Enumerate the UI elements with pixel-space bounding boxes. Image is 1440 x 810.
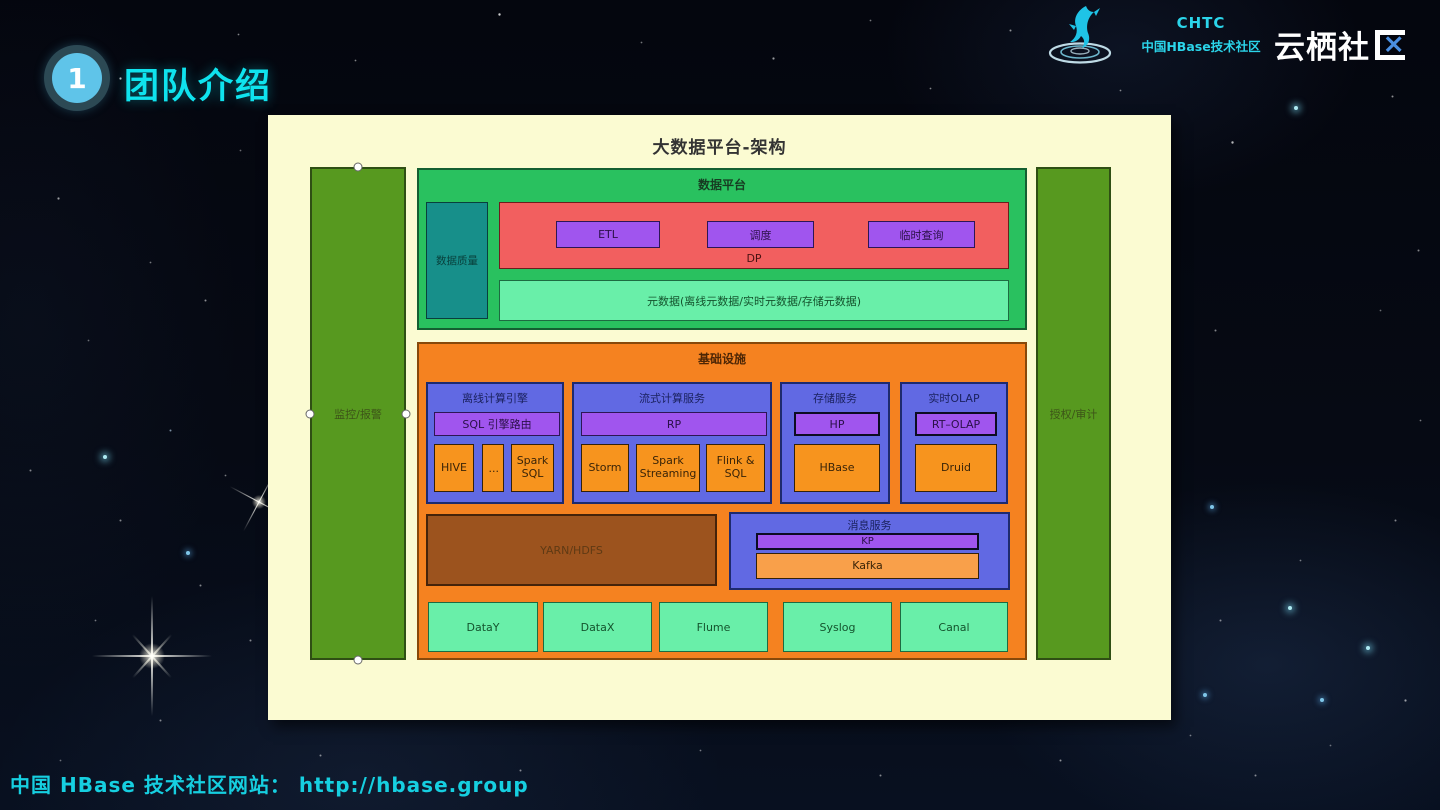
star-glow <box>186 551 190 555</box>
more-engines-box[interactable]: ... <box>482 444 504 492</box>
rp-label: RP <box>667 418 681 431</box>
hbase-label: HBase <box>819 462 854 475</box>
star-glow <box>1210 505 1214 509</box>
storage-service-card[interactable]: 存储服务 HP HBase <box>780 382 890 504</box>
monitoring-alert-label: 监控/报警 <box>334 406 382 422</box>
spark-streaming-label: Spark Streaming <box>637 455 699 480</box>
community-website-link[interactable]: 中国 HBase 技术社区网站： http://hbase.group <box>10 769 529 798</box>
data-platform-panel[interactable]: 数据平台 数据质量 ETL 调度 临时查询 DP 元数据(离线元数据/实时元数据… <box>417 168 1027 330</box>
syslog-label: Syslog <box>820 621 856 634</box>
dp-label: DP <box>500 252 1008 265</box>
metadata-box[interactable]: 元数据(离线元数据/实时元数据/存储元数据) <box>499 280 1009 321</box>
offline-compute-title: 离线计算引擎 <box>428 390 562 406</box>
realtime-olap-title: 实时OLAP <box>902 390 1006 406</box>
rp-box[interactable]: RP <box>581 412 767 436</box>
auth-audit-label: 授权/审计 <box>1050 406 1098 422</box>
streaming-compute-title: 流式计算服务 <box>574 390 770 406</box>
chtc-logo-text: CHTC 中国HBase技术社区 <box>1122 14 1280 55</box>
spark-streaming-box[interactable]: Spark Streaming <box>636 444 700 492</box>
adhoc-query-label: 临时查询 <box>900 227 944 243</box>
flume-label: Flume <box>697 621 731 634</box>
metadata-label: 元数据(离线元数据/实时元数据/存储元数据) <box>647 293 861 309</box>
starfield-background <box>0 0 1 1</box>
kafka-label: Kafka <box>852 560 883 573</box>
flink-sql-label: Flink & SQL <box>717 455 755 480</box>
page-title: 团队介绍 <box>124 58 272 109</box>
yunqi-community-logo: 云栖社 × <box>1274 22 1405 67</box>
spark-sql-box[interactable]: Spark SQL <box>511 444 554 492</box>
selection-handle-bottom[interactable] <box>354 656 363 665</box>
canal-label: Canal <box>938 621 969 634</box>
sql-engine-router-label: SQL 引擎路由 <box>462 416 531 432</box>
diagram-title: 大数据平台-架构 <box>268 133 1171 158</box>
kp-box[interactable]: KP <box>756 533 979 550</box>
kafka-box[interactable]: Kafka <box>756 553 979 579</box>
ellipsis-label: ... <box>489 463 498 474</box>
scheduler-box[interactable]: 调度 <box>707 221 814 248</box>
spark-sql-label: Spark SQL <box>512 455 553 480</box>
chtc-community-name: 中国HBase技术社区 <box>1122 36 1280 55</box>
selection-handle-top[interactable] <box>354 163 363 172</box>
canal-box[interactable]: Canal <box>900 602 1008 652</box>
datax-label: DataX <box>581 621 615 634</box>
selection-handle-left[interactable] <box>306 410 315 419</box>
yunqi-logo-text: 云栖社 <box>1274 22 1370 67</box>
druid-label: Druid <box>941 462 971 475</box>
infrastructure-title: 基础设施 <box>419 350 1025 367</box>
rt-olap-label: RT–OLAP <box>932 418 980 431</box>
hp-label: HP <box>830 418 845 431</box>
druid-box[interactable]: Druid <box>915 444 997 492</box>
adhoc-query-box[interactable]: 临时查询 <box>868 221 975 248</box>
sql-engine-router-box[interactable]: SQL 引擎路由 <box>434 412 560 436</box>
data-quality-box[interactable]: 数据质量 <box>426 202 488 319</box>
hp-box[interactable]: HP <box>794 412 880 436</box>
data-quality-label: 数据质量 <box>436 253 478 268</box>
streaming-compute-card[interactable]: 流式计算服务 RP Storm Spark Streaming Flink & … <box>572 382 772 504</box>
star-glow <box>1294 106 1298 110</box>
storm-label: Storm <box>588 462 621 475</box>
yarn-hdfs-box[interactable]: YARN/HDFS <box>426 514 717 586</box>
etl-box[interactable]: ETL <box>556 221 660 248</box>
star-glow <box>1203 693 1207 697</box>
section-number: 1 <box>52 53 102 103</box>
yunqi-qu-glyph: × <box>1375 30 1405 60</box>
datax-box[interactable]: DataX <box>543 602 652 652</box>
data-platform-title: 数据平台 <box>419 176 1025 193</box>
scheduler-label: 调度 <box>750 227 772 243</box>
offline-compute-card[interactable]: 离线计算引擎 SQL 引擎路由 HIVE ... Spark SQL <box>426 382 564 504</box>
dp-panel[interactable]: ETL 调度 临时查询 DP <box>499 202 1009 269</box>
datay-label: DataY <box>467 621 500 634</box>
infrastructure-panel[interactable]: 基础设施 离线计算引擎 SQL 引擎路由 HIVE ... Spark SQL <box>417 342 1027 660</box>
chtc-acronym: CHTC <box>1122 14 1280 32</box>
datay-box[interactable]: DataY <box>428 602 538 652</box>
star-glow <box>103 455 107 459</box>
yunqi-x-icon: × <box>1382 30 1406 57</box>
storm-box[interactable]: Storm <box>581 444 629 492</box>
star-glow <box>1288 606 1292 610</box>
monitoring-alert-bar[interactable]: 监控/报警 <box>310 167 406 660</box>
hbase-box[interactable]: HBase <box>794 444 880 492</box>
syslog-box[interactable]: Syslog <box>783 602 892 652</box>
chtc-dolphin-logo <box>1040 4 1120 70</box>
flume-box[interactable]: Flume <box>659 602 768 652</box>
star-glow <box>1366 646 1370 650</box>
star-glow <box>1320 698 1324 702</box>
selection-handle-right[interactable] <box>402 410 411 419</box>
section-number-badge: 1 <box>44 45 110 111</box>
rt-olap-box[interactable]: RT–OLAP <box>915 412 997 436</box>
hive-label: HIVE <box>441 462 467 475</box>
auth-audit-bar[interactable]: 授权/审计 <box>1036 167 1111 660</box>
message-service-title: 消息服务 <box>731 517 1008 533</box>
kp-label: KP <box>861 536 874 547</box>
message-service-card[interactable]: 消息服务 KP Kafka <box>729 512 1010 590</box>
flink-sql-box[interactable]: Flink & SQL <box>706 444 765 492</box>
dolphin-icon <box>1040 4 1120 66</box>
storage-service-title: 存储服务 <box>782 390 888 406</box>
etl-label: ETL <box>598 228 618 241</box>
hive-box[interactable]: HIVE <box>434 444 474 492</box>
slide-viewport: 1 团队介绍 CHTC 中国HBase技术社区 云栖社 × 大数据平台-架构 监… <box>0 0 1440 810</box>
yarn-hdfs-label: YARN/HDFS <box>540 544 603 557</box>
realtime-olap-card[interactable]: 实时OLAP RT–OLAP Druid <box>900 382 1008 504</box>
